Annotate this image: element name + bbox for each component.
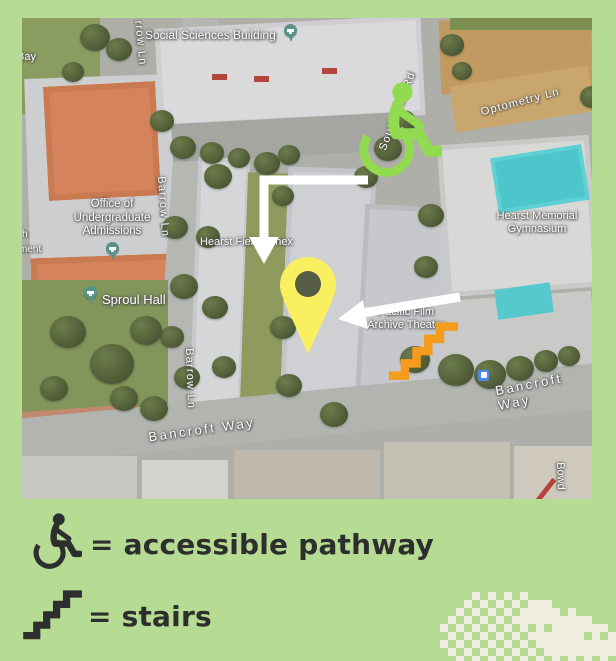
pixel: [520, 592, 528, 600]
pixel: [520, 624, 528, 632]
campus-satellite-map: Social Sciences Building Bay Office of U…: [22, 18, 592, 499]
pixel: [528, 648, 536, 656]
pixel: [592, 640, 600, 648]
pixel: [560, 632, 568, 640]
pixel: [440, 624, 448, 632]
pixel: [568, 632, 576, 640]
graduation-cap-pin-icon: [106, 242, 120, 262]
pixel: [560, 624, 568, 632]
pixel: [496, 616, 504, 624]
tree: [62, 62, 84, 82]
tree: [272, 186, 294, 206]
bus-icon: [478, 370, 489, 381]
pixel: [520, 608, 528, 616]
pixel: [544, 616, 552, 624]
pixel: [456, 624, 464, 632]
pixel: [472, 640, 480, 648]
pixel: [504, 656, 512, 661]
tree: [130, 316, 162, 345]
pixel: [592, 648, 600, 656]
pixel: [520, 656, 528, 661]
pixel: [456, 656, 464, 661]
pixel: [504, 640, 512, 648]
pixel: [568, 624, 576, 632]
roof-detail: [212, 74, 227, 80]
pixel: [552, 632, 560, 640]
orange-roof: [43, 81, 161, 201]
pixel: [592, 624, 600, 632]
street-label-barrow-low: Barrow Ln: [182, 348, 197, 409]
tree: [106, 38, 132, 61]
tree: [40, 376, 68, 401]
pixel: [552, 640, 560, 648]
pixel: [568, 616, 576, 624]
pixel: [608, 648, 616, 656]
pixel: [584, 640, 592, 648]
pixel: [536, 600, 544, 608]
map-label-social-sciences: Social Sciences Building: [145, 28, 276, 42]
pixel: [464, 648, 472, 656]
pixel: [504, 608, 512, 616]
cap-glyph-base: [111, 250, 114, 252]
pixel: [488, 608, 496, 616]
pixel: [600, 624, 608, 632]
graduation-cap-pin-icon: [84, 286, 98, 306]
legend-accessible-label: = accessible pathway: [90, 528, 434, 561]
pixel: [544, 600, 552, 608]
pixel: [576, 640, 584, 648]
pixel: [520, 640, 528, 648]
pixel: [592, 632, 600, 640]
accessibility-map-flyer: { "title_context": "campus accessibility…: [0, 0, 616, 661]
pixel: [576, 648, 584, 656]
pixel: [536, 632, 544, 640]
tree: [90, 344, 134, 384]
pixel: [488, 624, 496, 632]
pixel: [536, 656, 544, 661]
pixel: [456, 608, 464, 616]
pixel-art-decoration: [440, 592, 616, 661]
pixel: [488, 640, 496, 648]
tree: [400, 346, 430, 373]
map-label-hearst-field-annex: Hearst Field Annex: [200, 236, 293, 249]
pixel: [536, 640, 544, 648]
pixel: [560, 616, 568, 624]
pixel: [504, 592, 512, 600]
pixel: [440, 640, 448, 648]
map-label-fragment-2: ment: [22, 244, 41, 256]
pixel: [480, 648, 488, 656]
map-label-fragment-1: h: [22, 229, 28, 241]
tree: [320, 402, 348, 427]
pixel: [600, 656, 608, 661]
pixel: [472, 656, 480, 661]
pixel: [472, 624, 480, 632]
tree: [200, 142, 224, 164]
pixel: [600, 640, 608, 648]
pixel: [528, 632, 536, 640]
pixel: [488, 592, 496, 600]
pixel: [448, 616, 456, 624]
tree: [150, 110, 174, 132]
pixel: [448, 648, 456, 656]
pixel: [544, 608, 552, 616]
roof-detail: [322, 68, 337, 74]
pixel: [568, 656, 576, 661]
pixel: [568, 608, 576, 616]
map-label-sproul-hall: Sproul Hall: [102, 292, 166, 307]
pixel: [504, 624, 512, 632]
pixel: [576, 624, 584, 632]
pixel: [456, 640, 464, 648]
pixel: [528, 608, 536, 616]
tree: [354, 166, 378, 188]
pixel: [568, 640, 576, 648]
street-label-barrow-top: rrow Ln: [131, 20, 149, 66]
pixel: [536, 608, 544, 616]
tree: [160, 326, 184, 348]
pixel: [520, 616, 528, 624]
wheelchair-icon: [28, 511, 82, 573]
pixel: [584, 656, 592, 661]
tree: [440, 34, 464, 56]
tree: [110, 386, 138, 411]
pixel: [472, 592, 480, 600]
tree: [534, 350, 558, 372]
building-south-3: [234, 450, 380, 499]
tree: [414, 256, 438, 278]
building-south-1: [22, 456, 137, 499]
pixel: [544, 632, 552, 640]
building-south-2: [142, 460, 228, 499]
pixel: [552, 648, 560, 656]
pixel: [480, 632, 488, 640]
pixel: [496, 648, 504, 656]
grass-strip: [450, 18, 592, 30]
tree: [452, 62, 472, 80]
pixel: [528, 616, 536, 624]
pin-tail: [110, 253, 116, 260]
pixel: [584, 624, 592, 632]
tree: [170, 274, 198, 299]
map-label-gymnasium: Hearst Memorial Gymnasium: [480, 210, 592, 236]
tree: [278, 145, 300, 165]
map-label-admissions: Office of Undergraduate Admissions: [56, 198, 168, 239]
pixel: [560, 640, 568, 648]
pixel: [576, 632, 584, 640]
pixel: [464, 616, 472, 624]
pixel: [544, 640, 552, 648]
map-label-bay: Bay: [22, 51, 36, 64]
stairs-icon: [20, 585, 86, 641]
pin-tail: [88, 297, 94, 304]
pixel: [568, 648, 576, 656]
cap-glyph-base: [89, 294, 92, 296]
pixel: [496, 600, 504, 608]
tree: [228, 148, 250, 168]
cap-glyph-base: [289, 32, 292, 34]
pixel: [536, 624, 544, 632]
tree: [204, 164, 232, 189]
pixel: [496, 632, 504, 640]
pixel: [448, 632, 456, 640]
roof-detail: [254, 76, 269, 82]
pixel: [464, 632, 472, 640]
pixel: [608, 632, 616, 640]
pixel: [512, 632, 520, 640]
pixel: [584, 648, 592, 656]
pin-tail: [288, 35, 294, 42]
pixel: [608, 640, 616, 648]
graduation-cap-pin-icon: [284, 24, 298, 44]
building-south-4: [384, 442, 510, 499]
pixel: [584, 616, 592, 624]
pixel: [512, 616, 520, 624]
pixel: [480, 600, 488, 608]
map-label-bowditch: Bowd: [553, 462, 567, 490]
pixel: [464, 600, 472, 608]
pixel: [576, 616, 584, 624]
tree: [212, 356, 236, 378]
pixel: [552, 656, 560, 661]
pixel: [488, 656, 496, 661]
pixel: [536, 616, 544, 624]
pixel: [552, 624, 560, 632]
pixel: [512, 648, 520, 656]
pixel: [528, 600, 536, 608]
map-label-film-theater: Pacific Film Archive Theater: [350, 306, 462, 332]
pixel: [472, 608, 480, 616]
pixel: [552, 616, 560, 624]
pixel: [480, 616, 488, 624]
legend-stairs-label: = stairs: [88, 600, 212, 633]
tree: [254, 152, 280, 175]
pixel: [512, 600, 520, 608]
pixel: [544, 648, 552, 656]
pixel: [600, 648, 608, 656]
pixel: [560, 648, 568, 656]
tree: [140, 396, 168, 421]
tree: [558, 346, 580, 366]
pixel: [552, 608, 560, 616]
